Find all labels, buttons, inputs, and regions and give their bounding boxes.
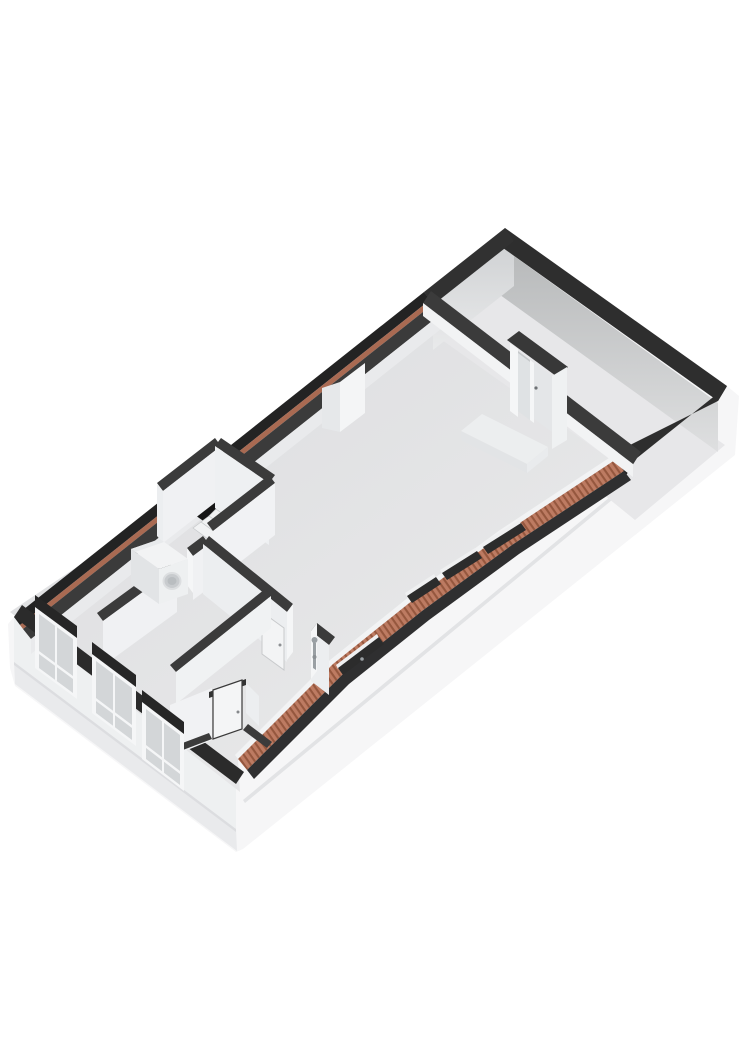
bathroom-door-jamb: [287, 604, 293, 660]
stair-nw-wall-end-face: [157, 484, 163, 543]
window-mullion: [113, 674, 115, 728]
toilet-door-leaf: [213, 680, 242, 739]
door-handle: [279, 644, 282, 647]
french-door-mullion: [530, 360, 534, 423]
shower-knob: [313, 655, 317, 659]
window-mullion: [162, 721, 164, 774]
shower-head: [312, 637, 318, 643]
french-door-frame-left: [510, 343, 518, 417]
chimney-sw-face: [322, 382, 340, 432]
french-door-glass-left: [518, 351, 530, 420]
french-door-handle: [534, 386, 537, 389]
window-mullion: [55, 626, 57, 681]
french-door-side-face: [552, 367, 567, 449]
washer-door-glass: [168, 577, 177, 585]
floorplan-3d-canvas: 3D floor plan - attic storey, axonometri…: [0, 0, 743, 1050]
roof-window-handle: [360, 657, 364, 661]
floorplan-3d-svg: 3D floor plan - attic storey, axonometri…: [0, 0, 743, 1050]
door-handle: [237, 711, 240, 714]
